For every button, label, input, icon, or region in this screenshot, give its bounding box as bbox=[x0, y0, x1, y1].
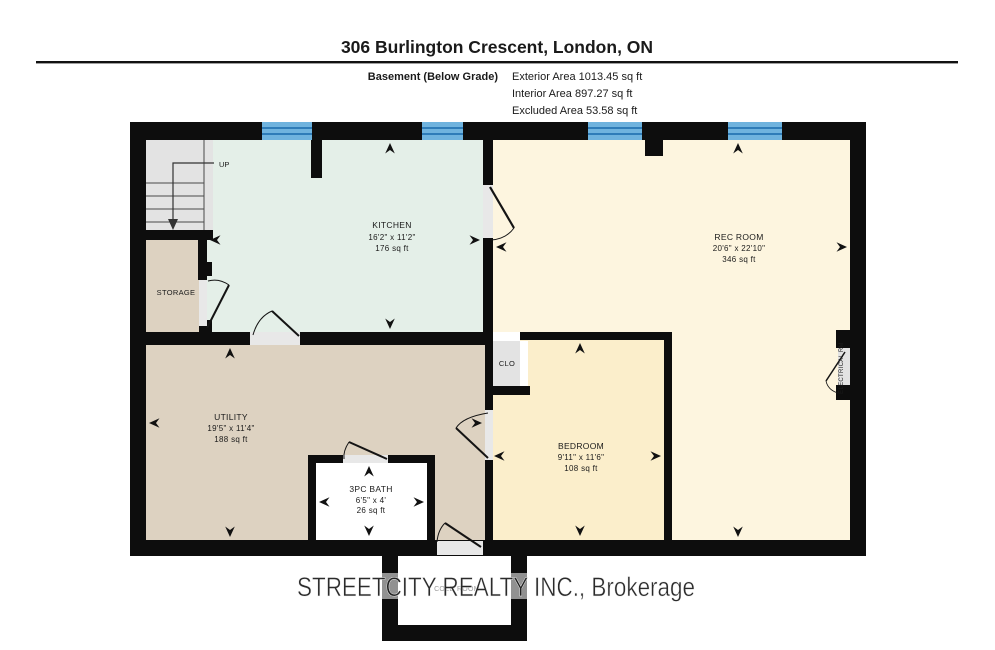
wall-clo-bottom bbox=[488, 386, 530, 395]
wall-bath-left bbox=[308, 455, 316, 540]
kitchen-area: 176 sq ft bbox=[375, 244, 409, 253]
bedroom-area: 108 sq ft bbox=[564, 464, 598, 473]
bath-name: 3PC BATH bbox=[349, 484, 392, 494]
wall-cold-bottom bbox=[382, 625, 527, 641]
clo-name: CLO bbox=[499, 359, 515, 368]
exterior-area-label: Exterior Area 1013.45 sq ft bbox=[512, 71, 642, 83]
interior-area-label: Interior Area 897.27 sq ft bbox=[512, 88, 632, 100]
bath-area: 26 sq ft bbox=[357, 506, 386, 515]
wall-bedroom-top bbox=[520, 332, 672, 340]
wall-bath-right bbox=[427, 455, 435, 540]
window bbox=[422, 122, 463, 140]
electrical-room-name: ELECTRICAL RM bbox=[839, 342, 845, 394]
header-divider bbox=[36, 61, 958, 63]
kitchen-dims: 16'2" x 11'2" bbox=[368, 233, 415, 242]
wall-bottom bbox=[130, 540, 866, 556]
window bbox=[588, 122, 642, 140]
bedroom-dims: 9'11" x 11'6" bbox=[558, 453, 605, 462]
wall-kitchen-utility-left bbox=[146, 332, 250, 345]
clo-doorway bbox=[493, 332, 520, 341]
rec-room-dims: 20'6" x 22'10" bbox=[713, 244, 766, 253]
wall-kitchen-utility-right bbox=[300, 332, 493, 345]
stairs-up-label: UP bbox=[219, 160, 229, 169]
utility-name: UTILITY bbox=[214, 412, 248, 422]
wall-kitchen-rec-lower bbox=[483, 238, 493, 345]
kitchen-name: KITCHEN bbox=[372, 220, 411, 230]
room-stairwell bbox=[146, 140, 213, 232]
window bbox=[728, 122, 782, 140]
window bbox=[262, 122, 312, 140]
wall-utility-bedroom-lower bbox=[485, 460, 493, 540]
utility-dims: 19'5" x 11'4" bbox=[207, 424, 254, 433]
rec-room-area: 346 sq ft bbox=[722, 255, 756, 264]
wall-stub-rec bbox=[645, 140, 663, 156]
wall-bedroom-right bbox=[664, 332, 672, 540]
wall-stub-kitchen bbox=[311, 140, 322, 178]
rec-room-name: REC ROOM bbox=[714, 232, 763, 242]
floor-plan-canvas: 306 Burlington Crescent, London, ON Base… bbox=[0, 0, 995, 650]
bath-dims: 6'5" x 4' bbox=[356, 496, 387, 505]
excluded-area-label: Excluded Area 53.58 sq ft bbox=[512, 105, 637, 117]
wall-utility-bedroom-upper bbox=[485, 345, 493, 410]
wall-kitchen-rec-upper bbox=[483, 140, 493, 185]
floor-label: Basement (Below Grade) bbox=[368, 71, 499, 83]
wall-left bbox=[130, 122, 146, 556]
utility-area: 188 sq ft bbox=[214, 435, 248, 444]
bedroom-name: BEDROOM bbox=[558, 441, 604, 451]
room-storage bbox=[146, 240, 207, 332]
storage-name: STORAGE bbox=[157, 288, 196, 297]
watermark-text: STREETCITY REALTY INC., Brokerage bbox=[297, 572, 695, 602]
watermark: STREETCITY REALTY INC., Brokerage bbox=[290, 572, 704, 602]
floor-plan-page: 306 Burlington Crescent, London, ON Base… bbox=[0, 0, 995, 650]
wall-right bbox=[850, 122, 866, 556]
page-title: 306 Burlington Crescent, London, ON bbox=[341, 37, 653, 57]
clo-opening bbox=[520, 341, 528, 386]
